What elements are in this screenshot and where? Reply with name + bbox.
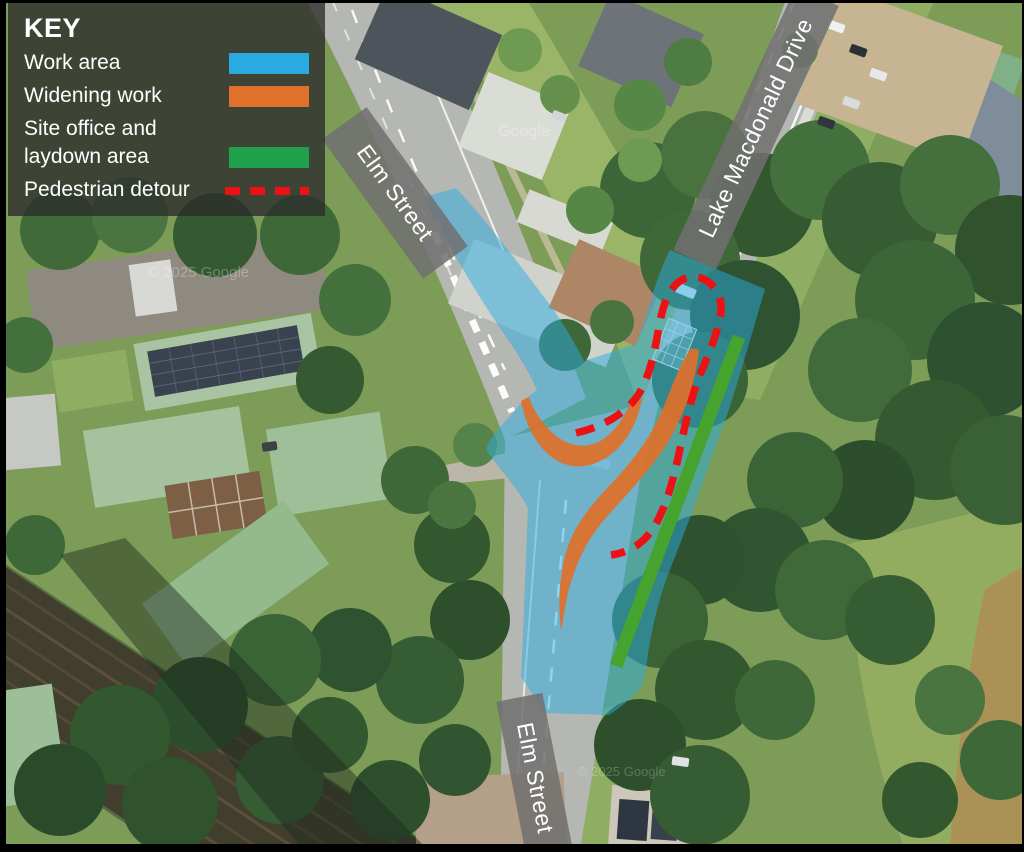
legend-title: KEY: [24, 13, 309, 44]
legend-label: Pedestrian detour: [24, 176, 225, 204]
work-area-swatch: [229, 53, 309, 74]
google-watermark: © 2025 Google: [148, 264, 249, 281]
legend-label: Widening work: [24, 82, 229, 110]
widening-work-swatch: [229, 86, 309, 107]
google-watermark: Google: [498, 123, 550, 140]
google-watermark: © 2025 Google: [578, 764, 666, 779]
legend-item-pedestrian-detour: Pedestrian detour: [24, 176, 309, 204]
pedestrian-detour-swatch: [225, 187, 309, 195]
site-office-swatch: [229, 147, 309, 168]
screenshot-frame: © 2025 Google Google © 2025 Google Elm S…: [0, 0, 1024, 852]
legend-item-site-office: Site office and laydown area: [24, 115, 309, 171]
legend-item-widening-work: Widening work: [24, 82, 309, 110]
map-canvas: © 2025 Google Google © 2025 Google Elm S…: [6, 3, 1022, 844]
map-legend: KEY Work area Widening work Site office …: [8, 3, 325, 216]
legend-label: Work area: [24, 49, 229, 77]
map-viewport: © 2025 Google Google © 2025 Google Elm S…: [6, 3, 1022, 844]
legend-label: Site office and laydown area: [24, 115, 229, 171]
legend-item-work-area: Work area: [24, 49, 309, 77]
